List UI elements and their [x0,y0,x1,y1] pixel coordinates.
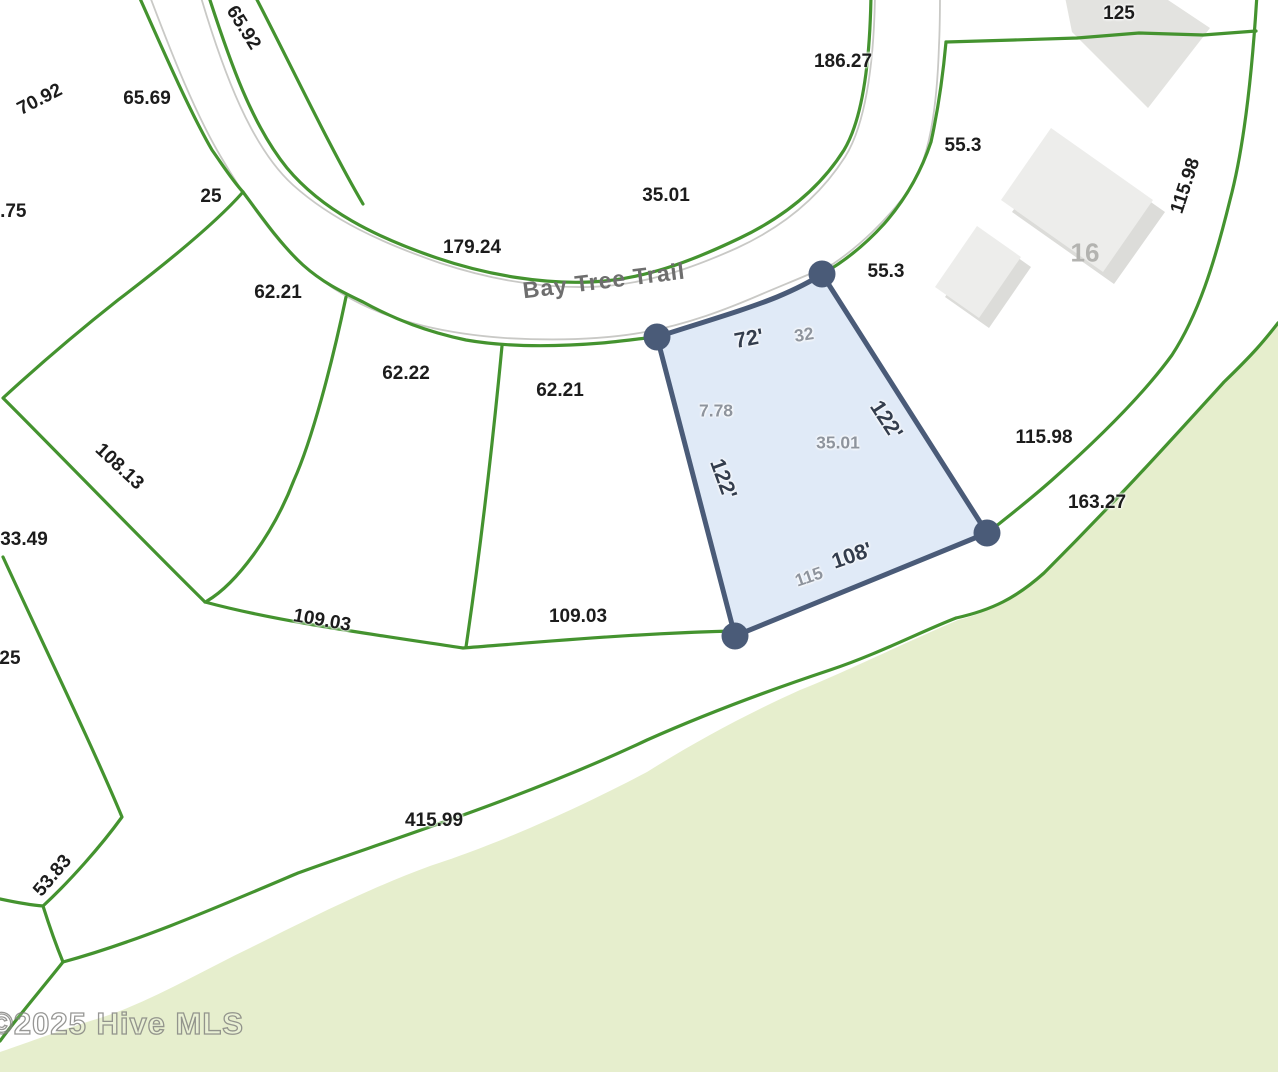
lot-gray-label: 115 [792,562,826,591]
dimension-label: 62.21 [254,282,302,304]
dimension-label: 33.49 [0,529,48,551]
dimension-label: 109.03 [549,606,607,628]
watermark-label: ©2025 Hive MLS [0,1006,244,1042]
lot-gray-label: 35.01 [816,433,860,454]
dimension-label: 125 [1103,3,1135,25]
lot-dimension-label: 108' [829,538,876,575]
dimension-label: 115.98 [1015,427,1072,449]
dimension-label: 179.24 [443,237,501,259]
dimension-label: 53.83 [29,851,76,902]
dimension-label: 163.27 [1068,492,1126,514]
dimension-label: 65.69 [123,88,171,110]
dimension-label: 65.92 [221,2,265,54]
map-labels-layer: 65.9270.9265.691.7525186.2712555.3115.98… [0,0,1278,1072]
dimension-label: 55.3 [945,135,982,157]
dimension-label: 25 [0,648,21,670]
dimension-label: 115.98 [1167,155,1206,216]
lot-dimension-label: 122' [704,455,742,502]
dimension-label: 35.01 [642,185,690,207]
dimension-label: 55.3 [868,261,905,283]
lot-dimension-label: 72' [732,324,765,354]
lot-gray-label: 7.78 [699,401,733,422]
lot-dimension-label: 122' [864,396,907,444]
building-number-label: 16 [1071,238,1100,269]
dimension-label: 62.22 [382,363,430,385]
dimension-label: 108.13 [90,439,148,495]
dimension-label: 62.21 [536,380,584,402]
dimension-label: 70.92 [14,79,66,120]
lot-gray-label: 32 [793,323,816,347]
dimension-label: 1.75 [0,201,26,223]
dimension-label: 25 [200,186,221,208]
dimension-label: 186.27 [814,51,872,73]
dimension-label: 109.03 [291,605,352,637]
street-name-label: Bay Tree Trail [521,258,687,305]
dimension-label: 415.99 [405,810,463,832]
plat-map: 65.9270.9265.691.7525186.2712555.3115.98… [0,0,1278,1072]
